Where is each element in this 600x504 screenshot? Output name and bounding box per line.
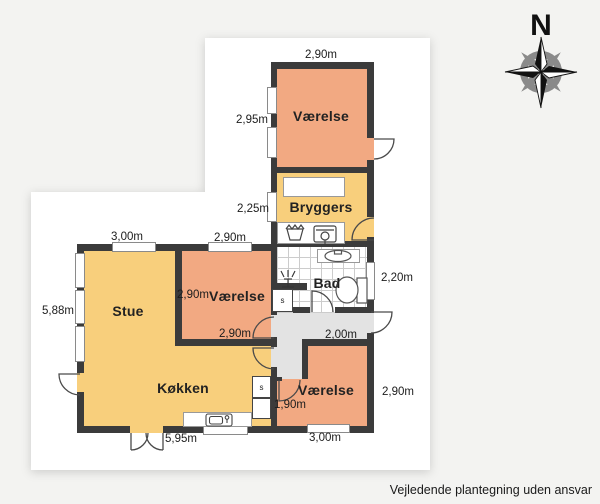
wall-segment [293, 307, 310, 313]
wall-segment [271, 167, 374, 173]
room-label-vaerelse-nord: Værelse [293, 108, 349, 124]
window [267, 87, 277, 114]
bad-sink-counter [317, 249, 360, 263]
closet-bad: s [272, 289, 293, 312]
room-label-stue: Stue [112, 303, 143, 319]
cabinet-koekken [252, 398, 271, 419]
wall-segment [302, 346, 308, 379]
compass-rose-icon: N [498, 0, 588, 115]
floor-plan-page: s s [0, 0, 600, 504]
dim-label-vaerelse-syd-inner: 1,90m [274, 399, 306, 411]
wall-segment [274, 377, 282, 381]
window [75, 253, 85, 288]
room-label-vaerelse-syd: Værelse [298, 382, 354, 398]
hall-floor [271, 313, 374, 339]
dim-label-vaerelse-midt-inner: 2,90m [177, 289, 209, 301]
wall-segment [367, 333, 374, 433]
dim-label-koekken-bottom: 5,95m [165, 433, 197, 445]
window [366, 262, 375, 300]
window [112, 242, 156, 252]
wall-segment [175, 339, 277, 346]
dim-label-vaerelse-midt-top: 2,90m [214, 232, 246, 244]
dim-label-vaerelse-nord-top: 2,90m [305, 49, 337, 61]
bryggers-counter [277, 222, 345, 244]
room-label-bad: Bad [313, 275, 340, 291]
dim-label-bad-right: 2,20m [381, 272, 413, 284]
disclaimer-text: Vejledende plantegning uden ansvar [390, 483, 592, 497]
wall-segment [335, 307, 374, 313]
window [267, 127, 277, 158]
dim-label-vaerelse-nord-left: 2,95m [236, 114, 268, 126]
dim-label-stue-top: 3,00m [111, 231, 143, 243]
room-label-koekken: Køkken [157, 380, 209, 396]
closet-label: s [260, 383, 264, 392]
closet-koekken: s [252, 376, 271, 398]
wall-segment [367, 62, 374, 138]
room-label-bryggers: Bryggers [289, 199, 352, 215]
closet-label: s [281, 296, 285, 305]
dim-label-vaerelse-syd-right: 2,90m [382, 386, 414, 398]
bryggers-table [283, 177, 345, 197]
dim-label-bryggers-left: 2,25m [237, 203, 269, 215]
dim-label-entre: 2,00m [325, 329, 357, 341]
wall-segment [271, 62, 374, 69]
dim-label-vaerelse-syd-bottom: 3,00m [309, 432, 341, 444]
wall-segment [77, 426, 130, 433]
compass-star [501, 32, 580, 111]
dim-label-vaerelse-midt-bottom: 2,90m [219, 328, 251, 340]
kitchen-counter [183, 412, 252, 427]
window [75, 290, 85, 324]
dim-label-stue-left: 5,88m [42, 305, 74, 317]
room-label-vaerelse-midt: Værelse [209, 288, 265, 304]
window [75, 326, 85, 362]
